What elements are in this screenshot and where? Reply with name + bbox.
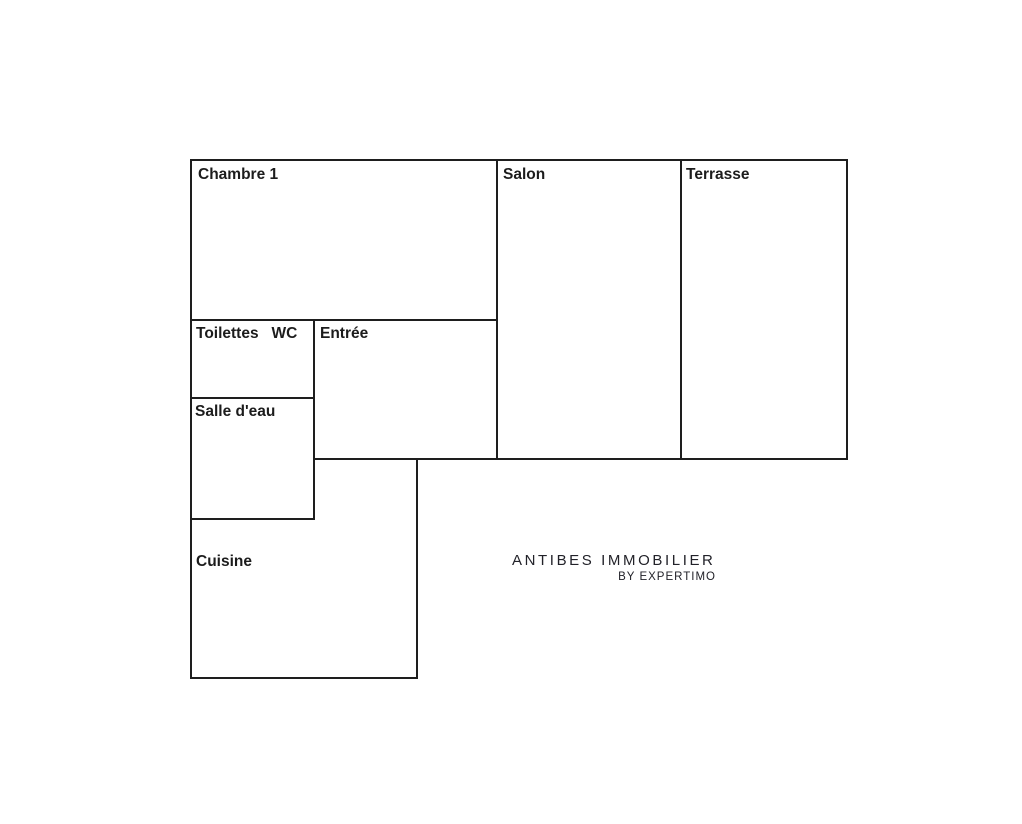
room-label-chambre-1: Chambre 1 [198, 165, 278, 184]
floor-plan-canvas: Chambre 1SalonTerrasseToilettes WCEntrée… [0, 0, 1022, 824]
room-label-salle-d-eau: Salle d'eau [195, 402, 275, 421]
floor-plan-walls [0, 0, 1022, 824]
room-label-toilettes-wc: Toilettes WC [196, 324, 297, 343]
room-label-entree: Entrée [320, 324, 368, 343]
agency-name: ANTIBES IMMOBILIER [512, 552, 716, 569]
room-label-cuisine: Cuisine [196, 552, 252, 571]
agency-watermark: ANTIBES IMMOBILIER BY EXPERTIMO [512, 552, 716, 584]
room-label-salon: Salon [503, 165, 545, 184]
room-label-terrasse: Terrasse [686, 165, 749, 184]
agency-byline: BY EXPERTIMO [512, 570, 716, 584]
